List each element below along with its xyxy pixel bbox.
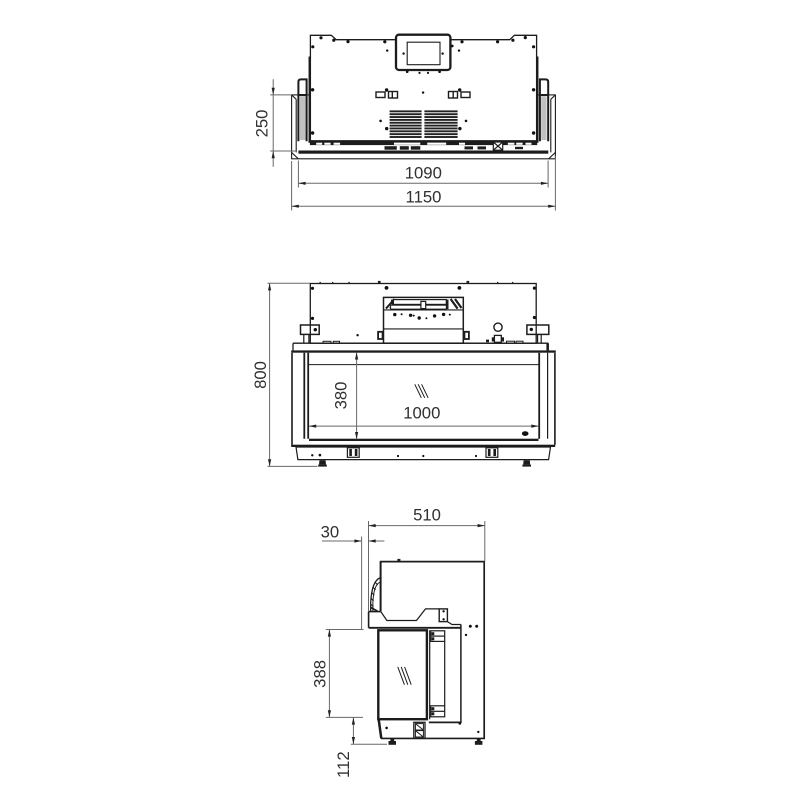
svg-text:510: 510: [413, 506, 441, 525]
svg-text:30: 30: [321, 522, 340, 541]
svg-text:1150: 1150: [406, 187, 442, 206]
svg-text:800: 800: [251, 361, 270, 389]
svg-text:1000: 1000: [403, 404, 440, 423]
svg-text:380: 380: [332, 382, 351, 410]
svg-text:250: 250: [252, 110, 271, 138]
svg-text:1090: 1090: [405, 164, 442, 183]
svg-text:112: 112: [334, 751, 353, 778]
svg-text:388: 388: [311, 660, 330, 688]
